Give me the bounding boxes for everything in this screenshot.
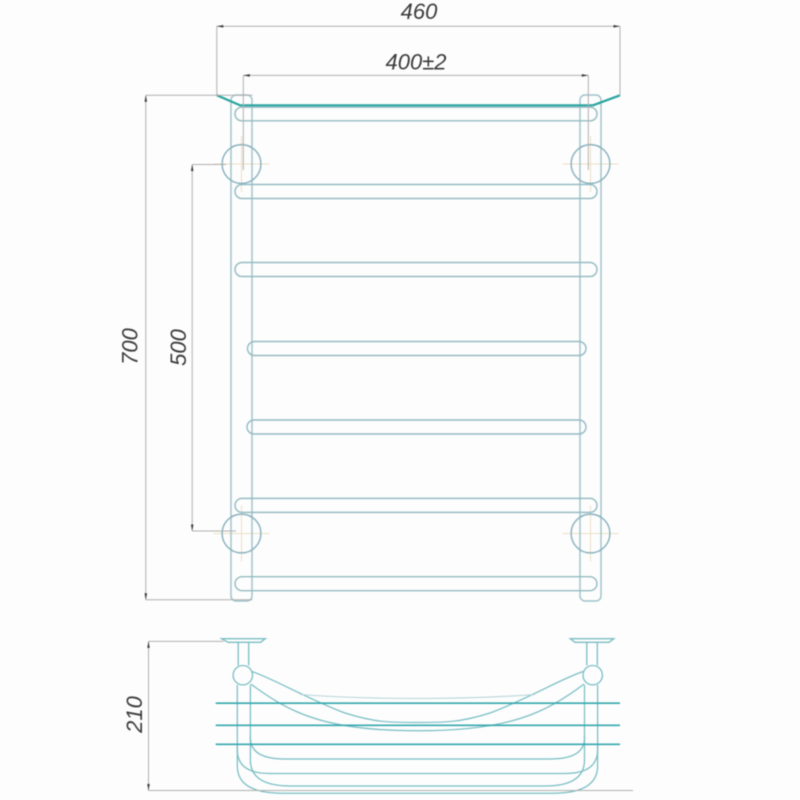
svg-text:460: 460: [401, 0, 438, 24]
svg-text:400±2: 400±2: [385, 50, 446, 75]
svg-text:500: 500: [166, 328, 191, 365]
svg-text:210: 210: [122, 695, 147, 733]
svg-text:700: 700: [118, 327, 143, 364]
